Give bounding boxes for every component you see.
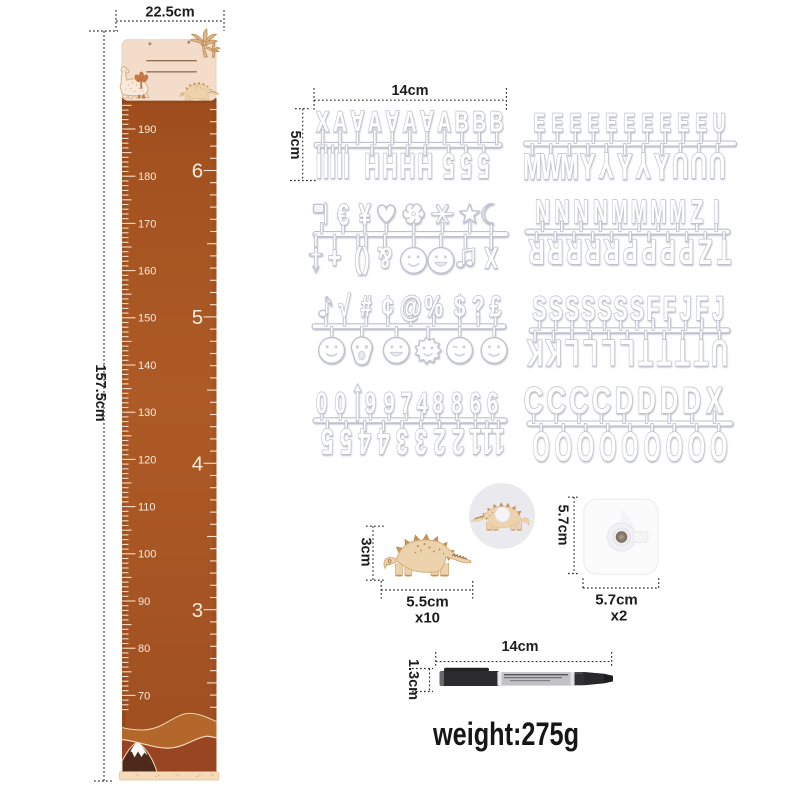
svg-text:140: 140: [138, 360, 156, 372]
svg-text:R: R: [585, 231, 601, 271]
svg-text:D: D: [615, 379, 633, 421]
svg-text:F: F: [663, 290, 676, 328]
svg-text:4: 4: [192, 453, 203, 476]
svg-text:9: 9: [384, 387, 395, 420]
svg-text:130: 130: [138, 407, 156, 419]
svg-text:U: U: [709, 145, 725, 185]
svg-text:P: P: [660, 231, 675, 271]
svg-text:X: X: [484, 240, 497, 272]
svg-text:L: L: [565, 332, 579, 374]
svg-text:I: I: [343, 145, 349, 183]
svg-text:P: P: [679, 231, 694, 271]
svg-text:5: 5: [321, 421, 333, 461]
svg-text:O: O: [577, 424, 594, 470]
svg-text:E: E: [534, 108, 545, 138]
svg-text:weight:275g: weight:275g: [432, 716, 579, 752]
svg-text:E: E: [641, 108, 652, 138]
svg-text:Y: Y: [636, 145, 651, 185]
svg-text:L: L: [583, 332, 597, 374]
svg-text:110: 110: [138, 502, 156, 514]
svg-text:S: S: [630, 290, 644, 328]
svg-text:160: 160: [138, 266, 156, 278]
svg-text:8: 8: [451, 387, 462, 420]
svg-text:U: U: [672, 145, 688, 185]
svg-text:A: A: [403, 107, 417, 139]
svg-text:H: H: [418, 145, 433, 184]
svg-text:5: 5: [478, 145, 490, 184]
svg-text:5.5cm: 5.5cm: [406, 594, 449, 611]
svg-text:L: L: [620, 332, 634, 374]
svg-text:S: S: [597, 290, 611, 328]
svg-text:N: N: [554, 193, 569, 230]
svg-text:1: 1: [492, 421, 504, 461]
svg-text:120: 120: [138, 454, 156, 466]
svg-text:R: R: [529, 231, 545, 271]
svg-text:Y: Y: [654, 148, 669, 188]
svg-text:90: 90: [138, 596, 150, 608]
svg-text:B: B: [455, 107, 469, 139]
svg-text:5cm: 5cm: [287, 130, 303, 159]
svg-text:3cm: 3cm: [358, 537, 374, 566]
svg-text:9: 9: [365, 387, 376, 420]
svg-text:3: 3: [396, 421, 408, 461]
svg-text:U: U: [713, 108, 725, 138]
svg-text:D: D: [660, 379, 678, 421]
svg-text:1: 1: [469, 421, 481, 461]
svg-text:M: M: [650, 193, 666, 231]
svg-text:D: D: [683, 379, 701, 421]
svg-text:I: I: [323, 145, 329, 183]
svg-text:%: %: [425, 291, 443, 323]
svg-text:I: I: [337, 145, 343, 183]
svg-text:€: €: [337, 199, 348, 231]
svg-text:M: M: [631, 193, 647, 231]
svg-text:x2: x2: [611, 608, 628, 625]
svg-text:Y: Y: [599, 145, 614, 185]
svg-text:3: 3: [415, 421, 427, 461]
svg-text:S: S: [581, 290, 595, 328]
svg-text:6: 6: [192, 160, 203, 183]
svg-text:@: @: [400, 289, 422, 323]
svg-text:3: 3: [192, 599, 203, 622]
svg-text:E: E: [606, 108, 617, 138]
svg-text:S: S: [549, 290, 563, 328]
svg-text:A: A: [438, 107, 452, 139]
svg-text:B: B: [472, 107, 486, 139]
svg-text:O: O: [621, 424, 638, 470]
svg-text:K: K: [527, 332, 543, 373]
svg-text:P: P: [623, 231, 638, 271]
svg-text:5.7cm: 5.7cm: [555, 504, 571, 545]
svg-text:C: C: [547, 380, 566, 421]
svg-text:190: 190: [138, 124, 156, 136]
svg-text:O: O: [555, 424, 572, 470]
svg-text:Z: Z: [698, 231, 711, 271]
svg-text:70: 70: [138, 690, 150, 702]
svg-text:Y: Y: [617, 148, 632, 188]
svg-text:T: T: [675, 332, 689, 374]
svg-text:C: C: [592, 380, 611, 421]
svg-text:150: 150: [138, 313, 156, 325]
svg-text:A: A: [385, 104, 399, 136]
svg-text:7: 7: [401, 387, 412, 420]
svg-text:D: D: [637, 379, 655, 421]
svg-text:x10: x10: [415, 610, 440, 627]
svg-text:I: I: [330, 145, 336, 183]
svg-text:$: $: [454, 291, 465, 323]
svg-text:&: &: [377, 241, 392, 273]
svg-text:A: A: [351, 104, 365, 136]
svg-text:2: 2: [433, 421, 445, 461]
svg-text:O: O: [688, 424, 705, 470]
svg-text:0: 0: [316, 387, 327, 420]
svg-text:157.5cm: 157.5cm: [92, 364, 108, 421]
svg-text:170: 170: [138, 218, 156, 230]
svg-text:N: N: [535, 193, 550, 230]
svg-text:E: E: [659, 108, 670, 138]
svg-text:¢: ¢: [382, 291, 393, 323]
svg-text:0: 0: [335, 387, 346, 420]
svg-text:E: E: [623, 108, 634, 138]
svg-text:5: 5: [443, 145, 455, 184]
svg-text:£: £: [490, 291, 501, 323]
svg-text:T: T: [717, 231, 730, 271]
svg-text:U: U: [711, 332, 728, 374]
svg-text:E: E: [588, 108, 599, 138]
svg-text:4: 4: [377, 421, 389, 461]
svg-text:14cm: 14cm: [391, 83, 428, 99]
svg-text:B: B: [490, 107, 504, 139]
svg-text:H: H: [364, 145, 379, 184]
svg-text:): ): [363, 243, 370, 275]
svg-text:M: M: [612, 193, 628, 231]
svg-text:6: 6: [470, 387, 481, 420]
svg-text:J: J: [712, 290, 724, 328]
svg-text:Z: Z: [691, 193, 704, 230]
svg-text:100: 100: [138, 549, 156, 561]
svg-text:L: L: [602, 332, 616, 374]
svg-text:14cm: 14cm: [501, 639, 538, 655]
svg-text:4: 4: [358, 421, 370, 461]
svg-text:80: 80: [138, 643, 150, 655]
svg-text:O: O: [710, 424, 727, 470]
svg-text:4: 4: [417, 387, 428, 420]
svg-text:A: A: [368, 107, 382, 139]
svg-text:A: A: [333, 107, 347, 139]
svg-text:X: X: [706, 379, 722, 421]
svg-text:O: O: [644, 424, 661, 470]
svg-text:√: √: [339, 291, 350, 323]
svg-text:I: I: [316, 145, 322, 183]
svg-text:22.5cm: 22.5cm: [145, 5, 194, 21]
svg-text:I: I: [713, 193, 719, 230]
svg-text:A: A: [420, 104, 434, 136]
svg-text:C: C: [569, 380, 588, 421]
svg-text:E: E: [695, 108, 706, 138]
svg-text:M: M: [523, 148, 541, 188]
svg-text:F: F: [647, 290, 660, 328]
svg-text:5.7cm: 5.7cm: [595, 592, 638, 609]
svg-text:E: E: [552, 108, 563, 138]
svg-text:5: 5: [460, 145, 472, 184]
svg-text:T: T: [639, 332, 653, 374]
svg-text:S: S: [532, 290, 546, 328]
svg-text:1.3cm: 1.3cm: [405, 659, 421, 700]
svg-text:C: C: [524, 380, 543, 421]
svg-text:R: R: [566, 231, 582, 271]
svg-text:O: O: [599, 424, 616, 470]
svg-text:R: R: [604, 231, 620, 271]
svg-text:H: H: [400, 145, 415, 184]
svg-text:T: T: [657, 332, 671, 374]
svg-text:O: O: [666, 424, 683, 470]
svg-text:E: E: [677, 108, 688, 138]
svg-text:(: (: [355, 243, 362, 275]
svg-text:1: 1: [481, 421, 493, 461]
svg-text:180: 180: [138, 171, 156, 183]
svg-text:¥: ¥: [359, 199, 370, 231]
svg-text:F: F: [695, 290, 708, 328]
svg-text:N: N: [574, 193, 589, 230]
svg-text:R: R: [547, 231, 563, 271]
svg-text:H: H: [382, 145, 397, 184]
svg-text:S: S: [614, 290, 628, 328]
svg-text:J: J: [680, 290, 692, 328]
svg-text:5: 5: [340, 421, 352, 461]
svg-text:S: S: [565, 290, 579, 328]
svg-text:6: 6: [487, 387, 498, 420]
svg-text:#: #: [361, 292, 372, 324]
svg-text:P: P: [642, 231, 657, 271]
svg-text:N: N: [593, 193, 608, 230]
svg-text:2: 2: [452, 421, 464, 461]
svg-text:5: 5: [192, 306, 203, 329]
svg-text:X: X: [316, 107, 329, 139]
svg-text:8: 8: [432, 387, 443, 420]
svg-text:M: M: [670, 193, 686, 231]
svg-text:Y: Y: [580, 148, 595, 188]
svg-text:W: W: [541, 148, 562, 188]
svg-text:U: U: [691, 145, 707, 185]
svg-text:O: O: [533, 424, 550, 470]
svg-text:K: K: [545, 332, 561, 373]
svg-text:+: +: [328, 241, 341, 275]
svg-text:E: E: [570, 108, 581, 138]
svg-text:?: ?: [472, 291, 485, 323]
svg-text:M: M: [560, 148, 578, 188]
svg-text:T: T: [694, 332, 708, 374]
